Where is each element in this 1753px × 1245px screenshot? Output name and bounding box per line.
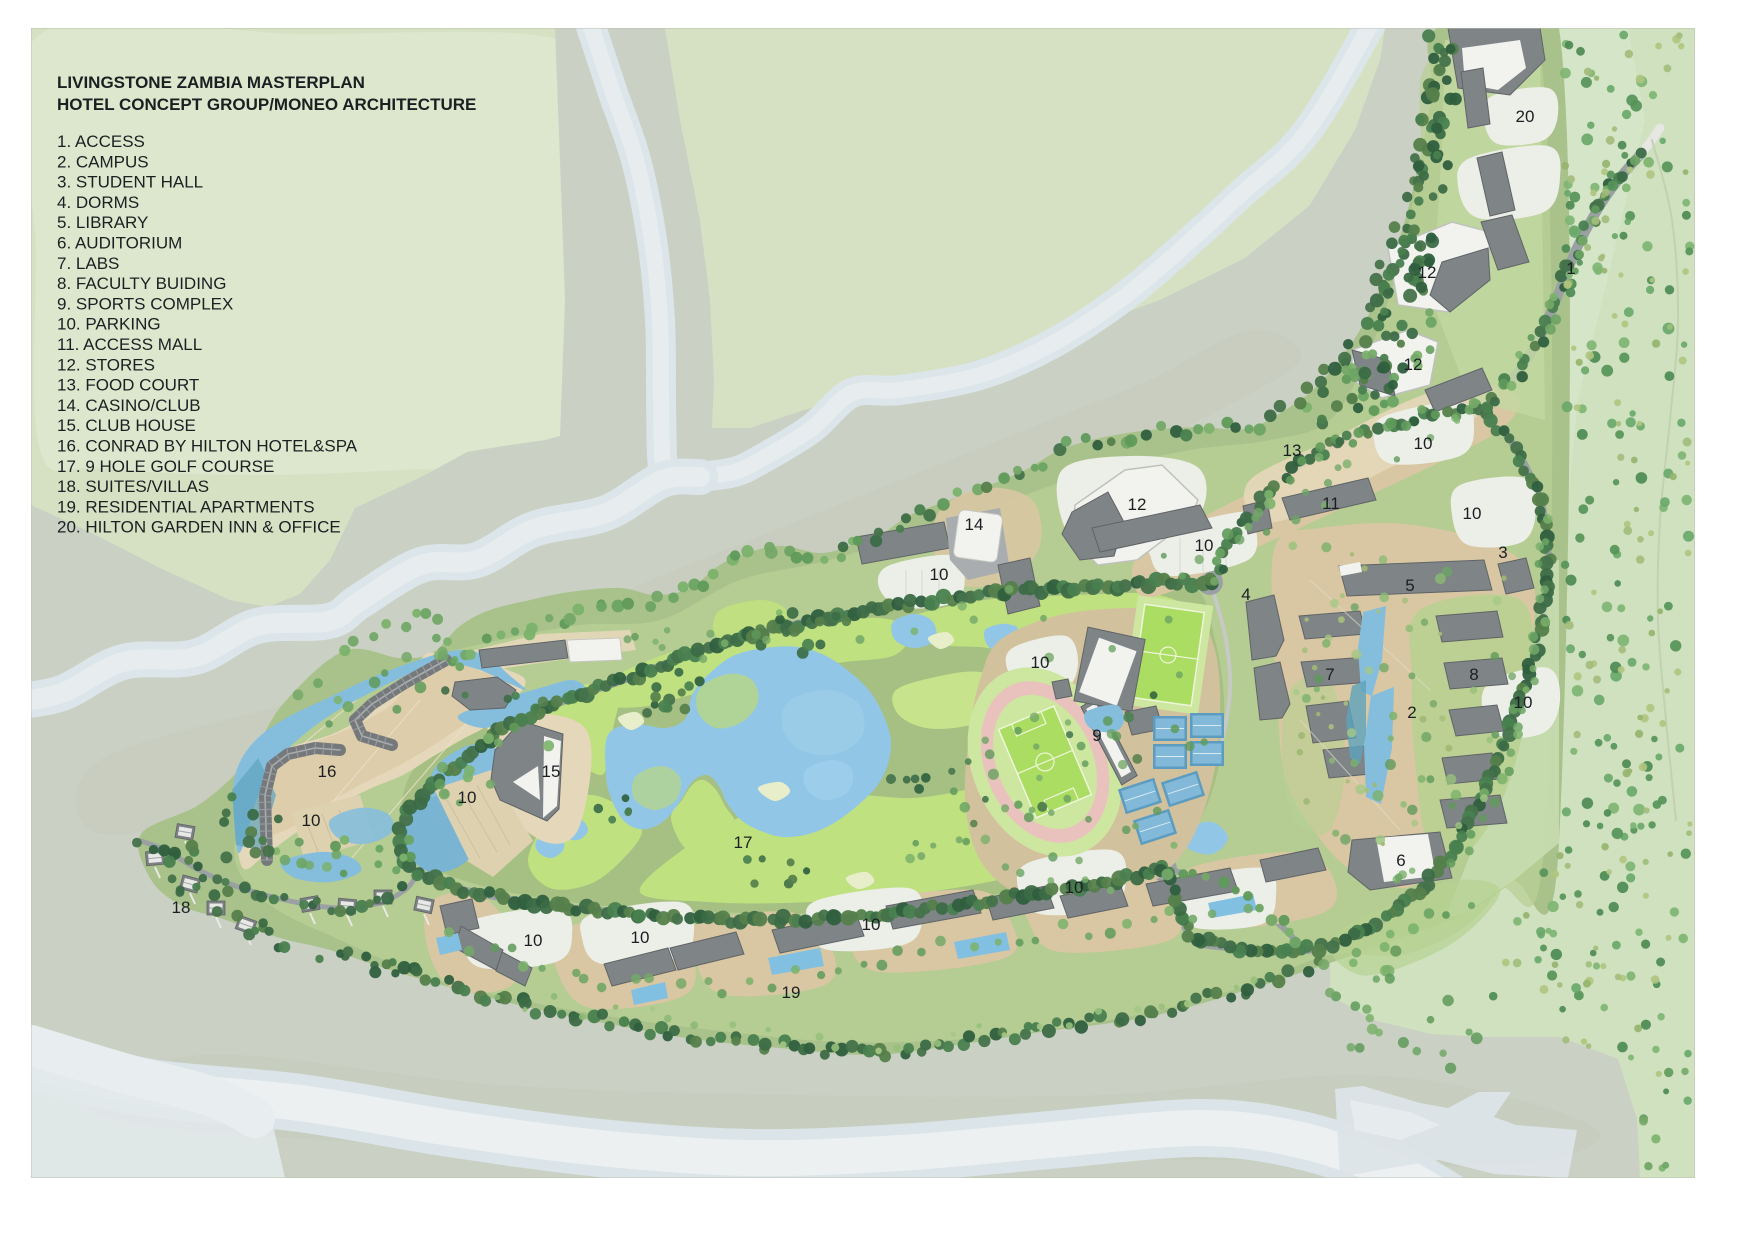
svg-text:12: 12 bbox=[1128, 495, 1147, 514]
svg-text:20. HILTON GARDEN INN & OFFICE: 20. HILTON GARDEN INN & OFFICE bbox=[57, 518, 341, 537]
svg-text:9. SPORTS COMPLEX: 9. SPORTS COMPLEX bbox=[57, 294, 233, 313]
svg-text:16. CONRAD BY HILTON HOTEL&SPA: 16. CONRAD BY HILTON HOTEL&SPA bbox=[57, 437, 358, 456]
svg-text:10: 10 bbox=[524, 931, 543, 950]
svg-text:7. LABS: 7. LABS bbox=[57, 254, 119, 273]
svg-text:5. LIBRARY: 5. LIBRARY bbox=[57, 213, 148, 232]
svg-text:11: 11 bbox=[1322, 494, 1340, 513]
svg-text:14: 14 bbox=[965, 515, 984, 534]
svg-text:16: 16 bbox=[318, 762, 337, 781]
svg-text:19: 19 bbox=[782, 983, 801, 1002]
svg-text:10: 10 bbox=[930, 565, 949, 584]
svg-text:14. CASINO/CLUB: 14. CASINO/CLUB bbox=[57, 396, 201, 415]
svg-text:12: 12 bbox=[1418, 263, 1437, 282]
svg-text:HOTEL CONCEPT GROUP/MONEO ARCH: HOTEL CONCEPT GROUP/MONEO ARCHITECTURE bbox=[57, 95, 476, 114]
svg-text:10: 10 bbox=[458, 788, 477, 807]
svg-text:10: 10 bbox=[1065, 878, 1084, 897]
svg-text:8: 8 bbox=[1469, 665, 1478, 684]
svg-text:10: 10 bbox=[1463, 504, 1482, 523]
svg-text:10: 10 bbox=[862, 915, 881, 934]
svg-text:10: 10 bbox=[302, 811, 321, 830]
svg-text:17. 9 HOLE GOLF COURSE: 17. 9 HOLE GOLF COURSE bbox=[57, 457, 274, 476]
svg-text:18. SUITES/VILLAS: 18. SUITES/VILLAS bbox=[57, 477, 209, 496]
svg-text:10: 10 bbox=[1031, 653, 1050, 672]
svg-text:10: 10 bbox=[1414, 434, 1433, 453]
svg-text:12: 12 bbox=[1404, 355, 1423, 374]
svg-text:10: 10 bbox=[1195, 536, 1214, 555]
svg-text:5: 5 bbox=[1405, 576, 1414, 595]
svg-text:20: 20 bbox=[1516, 107, 1535, 126]
svg-text:17: 17 bbox=[734, 833, 753, 852]
svg-text:11. ACCESS MALL: 11. ACCESS MALL bbox=[57, 335, 202, 354]
svg-text:2: 2 bbox=[1407, 703, 1416, 722]
svg-text:7: 7 bbox=[1325, 665, 1334, 684]
svg-text:15: 15 bbox=[542, 762, 561, 781]
svg-text:3: 3 bbox=[1498, 543, 1507, 562]
svg-text:1: 1 bbox=[1566, 259, 1575, 278]
svg-text:19. RESIDENTIAL APARTMENTS: 19. RESIDENTIAL APARTMENTS bbox=[57, 497, 315, 516]
svg-text:13: 13 bbox=[1283, 441, 1302, 460]
svg-text:6. AUDITORIUM: 6. AUDITORIUM bbox=[57, 234, 182, 253]
svg-text:15. CLUB HOUSE: 15. CLUB HOUSE bbox=[57, 416, 196, 435]
svg-text:6: 6 bbox=[1396, 851, 1405, 870]
svg-text:4. DORMS: 4. DORMS bbox=[57, 193, 139, 212]
svg-text:3. STUDENT HALL: 3. STUDENT HALL bbox=[57, 173, 203, 192]
svg-text:18: 18 bbox=[172, 898, 191, 917]
svg-text:9: 9 bbox=[1092, 726, 1101, 745]
svg-text:13. FOOD COURT: 13. FOOD COURT bbox=[57, 376, 199, 395]
svg-text:10: 10 bbox=[1514, 693, 1533, 712]
svg-text:1. ACCESS: 1. ACCESS bbox=[57, 132, 145, 151]
svg-text:8. FACULTY BUIDING: 8. FACULTY BUIDING bbox=[57, 274, 226, 293]
svg-text:2. CAMPUS: 2. CAMPUS bbox=[57, 152, 149, 171]
svg-text:10. PARKING: 10. PARKING bbox=[57, 315, 161, 334]
svg-text:12. STORES: 12. STORES bbox=[57, 355, 155, 374]
svg-text:4: 4 bbox=[1241, 585, 1250, 604]
svg-text:10: 10 bbox=[631, 928, 650, 947]
svg-text:LIVINGSTONE ZAMBIA MASTERPLAN: LIVINGSTONE ZAMBIA MASTERPLAN bbox=[57, 73, 365, 92]
